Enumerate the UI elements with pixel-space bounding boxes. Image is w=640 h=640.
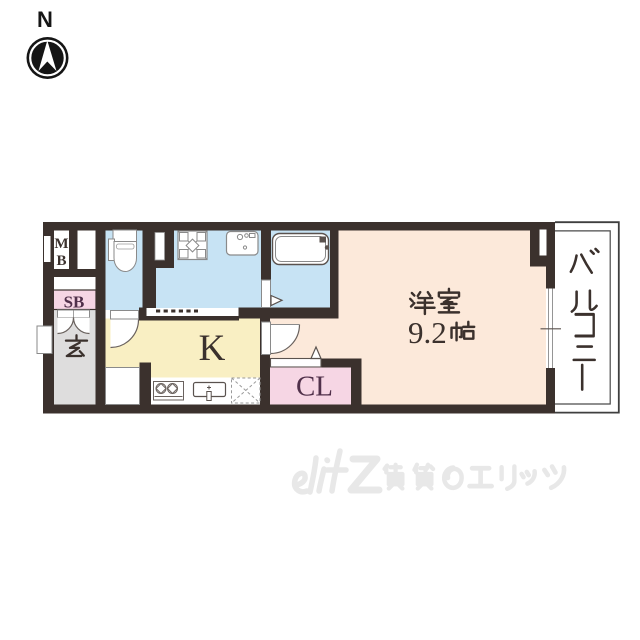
svg-text:B: B [56, 253, 66, 269]
svg-text:CL: CL [296, 371, 333, 403]
svg-text:K: K [199, 328, 226, 369]
svg-text:M: M [54, 236, 68, 252]
svg-text:9.2: 9.2 [408, 315, 447, 350]
svg-text:SB: SB [64, 293, 85, 312]
svg-text:N: N [37, 7, 53, 32]
